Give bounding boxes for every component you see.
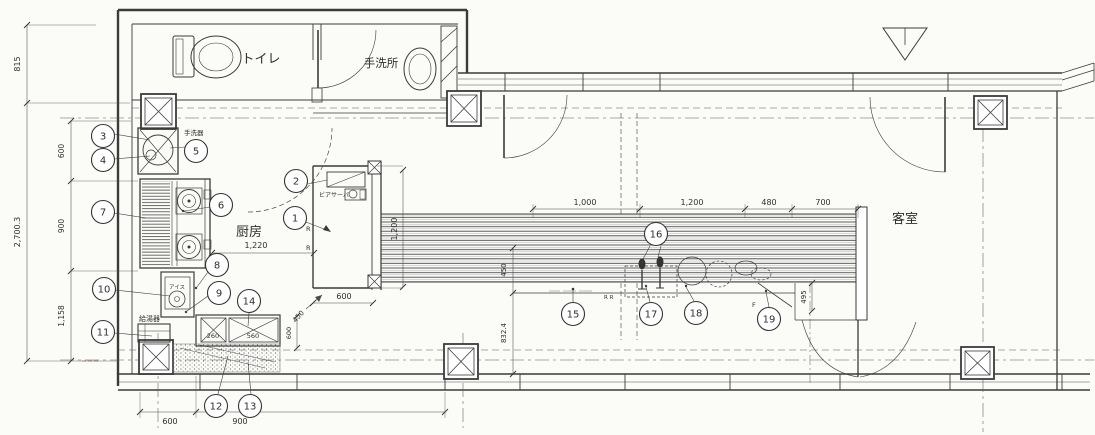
callout-5: 5 [185, 140, 208, 163]
callout-16-number: 16 [650, 230, 663, 241]
callout-15: 15 [562, 303, 585, 326]
column [974, 96, 1007, 129]
walls [118, 10, 1094, 390]
callout-14: 14 [238, 290, 261, 313]
callout-2: 2 [285, 170, 308, 193]
callout-2-number: 2 [293, 177, 299, 188]
counter-brace [758, 283, 792, 307]
callout-15-number: 15 [567, 310, 580, 321]
callout-4-number: 4 [100, 156, 106, 167]
label-water-heater: 給湯器 [139, 314, 160, 323]
room-labels: トイレ 手洗所 厨房 客室 [236, 52, 918, 240]
dim-counter-480: 480 [761, 198, 776, 207]
dim-sink-260: 260 [207, 332, 219, 340]
floor-hatch-area [173, 344, 280, 372]
dim-left-900: 900 [57, 219, 66, 234]
dim-beer-600: 600 [336, 292, 351, 301]
counter-post [368, 161, 381, 174]
hall-entry-door [504, 95, 567, 158]
callout-6-number: 6 [218, 201, 224, 212]
hand-wash-unit [138, 128, 178, 174]
dim-left-600: 600 [57, 144, 66, 159]
room-label-guestroom: 客室 [892, 211, 918, 227]
label-door-r2: R [306, 244, 311, 252]
column [961, 347, 994, 379]
dim-counter-700: 700 [815, 198, 830, 207]
label-counter-rr: R R [604, 295, 614, 301]
label-hand-wash: 手洗器 [184, 128, 204, 137]
label-beer-server: ビアサーバ [319, 191, 349, 199]
dim-counter-1200: 1,200 [681, 198, 704, 207]
room-label-toilet: トイレ [241, 52, 280, 67]
room-label-washroom: 手洗所 [364, 56, 399, 70]
callout-7-number: 7 [100, 208, 106, 219]
callout-7: 7 [92, 201, 115, 224]
dim-sink-560: 560 [247, 332, 259, 340]
column [141, 94, 176, 129]
callout-13: 13 [239, 395, 262, 418]
dim-2700: 2,700.3 [13, 217, 22, 248]
callout-18: 18 [685, 302, 708, 325]
dim-counter-8324: 832.4 [500, 322, 508, 343]
double-sink-unit [196, 315, 280, 346]
callout-14-number: 14 [243, 297, 256, 308]
dim-kitchen-1220: 1,220 [245, 241, 268, 250]
callout-8-number: 8 [214, 261, 220, 272]
column [444, 344, 478, 379]
dim-sink-600: 600 [285, 327, 293, 339]
callout-6: 6 [210, 194, 233, 217]
counter [381, 207, 867, 320]
callout-4: 4 [92, 149, 115, 172]
callout-18-number: 18 [690, 309, 703, 320]
triangle-marker [883, 28, 927, 60]
dim-counter-1000: 1,000 [574, 198, 597, 207]
range-unit [140, 179, 211, 268]
callout-17: 17 [640, 303, 663, 326]
kitchen-door-swing [248, 128, 332, 212]
counter-post [368, 275, 381, 288]
callout-3: 3 [92, 125, 115, 148]
callout-12: 12 [205, 395, 228, 418]
callout-19: 19 [758, 308, 781, 331]
column [139, 340, 173, 374]
callout-1-number: 1 [292, 214, 298, 225]
callout-16: 16 [645, 223, 668, 246]
dim-left-1158: 1,158 [57, 305, 66, 327]
callout-10: 10 [93, 278, 116, 301]
dim-bottom-900: 900 [232, 417, 247, 426]
callout-5-number: 5 [193, 147, 199, 158]
callout-3-number: 3 [100, 132, 106, 143]
callout-1: 1 [284, 207, 307, 230]
callout-12-number: 12 [210, 402, 223, 413]
column [447, 91, 481, 126]
callout-9-number: 9 [216, 289, 222, 300]
callout-11-number: 11 [97, 328, 110, 339]
callout-19-number: 19 [763, 315, 776, 326]
room-label-kitchen: 厨房 [236, 224, 262, 240]
dim-counter-495: 495 [800, 290, 808, 303]
dim-815: 815 [13, 56, 22, 71]
callout-9: 9 [208, 282, 231, 305]
label-door-r1: R [306, 225, 311, 233]
callout-8: 8 [206, 254, 229, 277]
floor-plan-sheet: トイレ 手洗所 厨房 客室 手洗器 給湯器 アイス ビアサーバ R R R R … [0, 0, 1095, 435]
callout-10-number: 10 [98, 285, 111, 296]
dim-counter-450: 450 [500, 263, 508, 276]
dim-pass-450: 450 [291, 309, 306, 324]
dim-beer-1200: 1,200 [390, 218, 399, 241]
callout-11: 11 [92, 321, 115, 344]
floor-plan-drawing: トイレ 手洗所 厨房 客室 手洗器 給湯器 アイス ビアサーバ R R R R … [0, 0, 1095, 435]
label-ice-maker: アイス [169, 284, 185, 291]
ice-maker-unit [161, 272, 194, 317]
callout-13-number: 13 [244, 402, 257, 413]
dim-bottom-600: 600 [162, 417, 177, 426]
callout-17-number: 17 [645, 310, 658, 321]
label-counter-f: F [752, 301, 756, 309]
beer-station [313, 161, 381, 290]
